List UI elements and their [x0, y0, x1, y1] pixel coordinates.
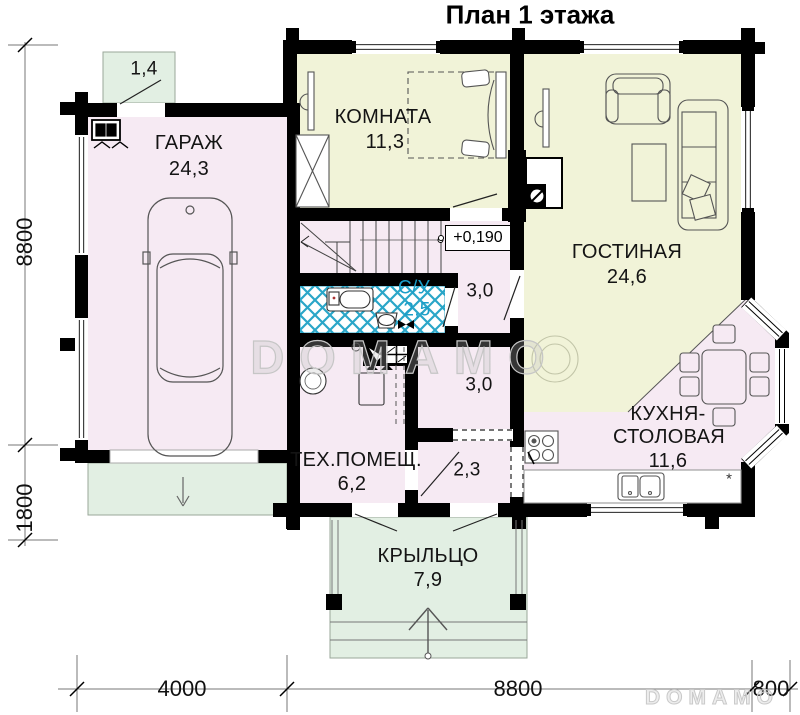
porch-area-label: 7,9: [414, 570, 443, 590]
garage-area-label: 24,3: [169, 159, 209, 179]
porch-post-right: [510, 594, 526, 610]
porch-post-left: [326, 594, 342, 610]
level-leader: [439, 236, 444, 241]
kitchen-name-line1-label: КУХНЯ-: [630, 404, 705, 424]
bedroom-window: [352, 40, 440, 54]
bathroom-area-label: 2,5: [403, 301, 430, 320]
bedroom-area-label: 11,3: [366, 132, 405, 152]
dim-vertical-1800: 1800: [12, 484, 38, 533]
floor-plan-page: План 1 этажа 1,4 ГАРАЖ 24,3 КОМНАТА 11,3…: [0, 0, 800, 715]
garage-name-label: ГАРАЖ: [155, 133, 223, 153]
open-passage-entry: [453, 429, 513, 441]
floor-level-mark: +0,190: [445, 225, 511, 251]
kitchen-window: [587, 503, 687, 517]
kitchen-area-label: 11,6: [649, 451, 688, 471]
page-title: План 1 этажа: [446, 0, 615, 31]
tech-area-label: 6,2: [338, 474, 367, 494]
porch-name-label: КРЫЛЬЦО: [378, 546, 479, 566]
dim-vertical-8800: 8800: [12, 218, 38, 267]
dim-horizontal-8800: 8800: [494, 676, 543, 702]
kitchen-note-mark: *: [726, 471, 732, 488]
hall-upper-area-label: 3,0: [466, 282, 493, 301]
kitchen-sink: [618, 473, 664, 500]
living-name-label: ГОСТИНАЯ: [572, 242, 682, 262]
dim-horizontal-800: 800: [753, 676, 790, 702]
tech-name-label: ТЕХ.ПОМЕЩ.: [290, 450, 422, 470]
kitchen-name-line2-label: СТОЛОВАЯ: [613, 427, 725, 447]
living-window: [580, 40, 683, 54]
open-passage-kitchen: [510, 447, 524, 497]
stove: [525, 431, 558, 464]
living-area-label: 24,6: [607, 267, 647, 287]
bathroom-name-label: С/У: [398, 279, 430, 298]
garage-west-window-2: [75, 318, 88, 440]
entry-area-label: 2,3: [453, 461, 480, 480]
bedroom-name-label: КОМНАТА: [335, 107, 432, 127]
sink: [376, 313, 397, 328]
floor-level-value: +0,190: [453, 229, 502, 247]
hall-lower-area-label: 3,0: [465, 376, 492, 395]
boiler: [300, 368, 326, 394]
vestibule-area-label: 1,4: [130, 60, 157, 79]
living-east-window: [741, 107, 755, 212]
wardrobe: [296, 135, 329, 207]
dim-horizontal-4000: 4000: [158, 676, 207, 702]
garage-west-window-1: [75, 135, 88, 255]
